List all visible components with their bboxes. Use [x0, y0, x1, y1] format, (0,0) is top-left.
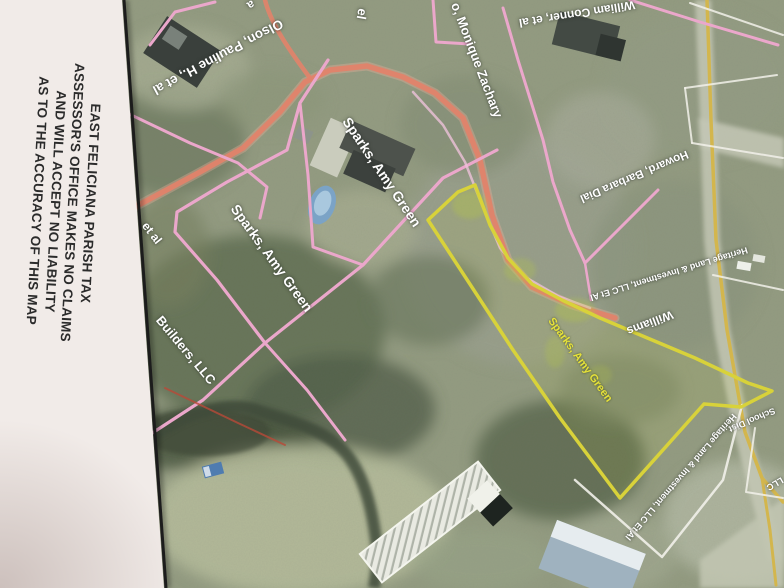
tax-map-photo: Olson, Pauline H., et al William Conner,… [0, 0, 784, 588]
disclaimer-text: EAST FELICIANA PARISH TAX ASSESSOR'S OFF… [22, 60, 107, 343]
